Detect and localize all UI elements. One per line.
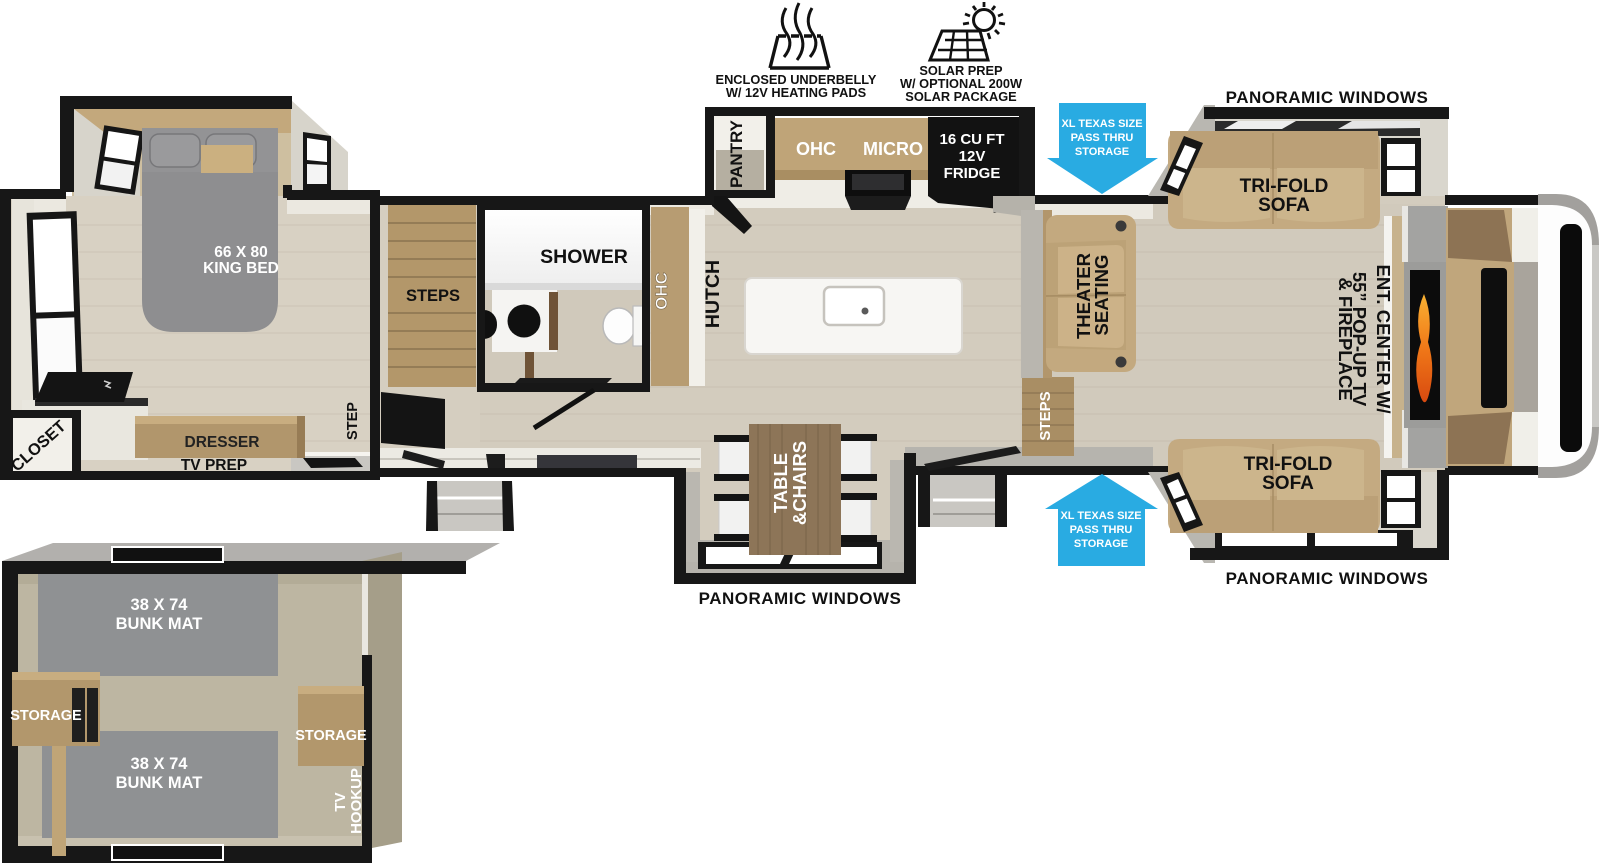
svg-text:& FIREPLACE: & FIREPLACE xyxy=(1335,277,1356,400)
svg-text:BUNK MAT: BUNK MAT xyxy=(116,615,203,633)
svg-text:&CHAIRS: &CHAIRS xyxy=(789,441,810,525)
svg-text:HUTCH: HUTCH xyxy=(702,260,724,328)
svg-text:SEATING: SEATING xyxy=(1091,255,1112,336)
svg-text:STEPS: STEPS xyxy=(406,287,460,305)
svg-text:STORAGE: STORAGE xyxy=(10,708,82,724)
svg-text:16 CU FT: 16 CU FT xyxy=(939,131,1004,148)
svg-text:66 X 80: 66 X 80 xyxy=(214,244,267,261)
svg-text:OHC: OHC xyxy=(652,272,671,310)
svg-text:12V: 12V xyxy=(959,148,986,165)
svg-text:PASS THRU: PASS THRU xyxy=(1071,132,1134,144)
svg-text:KING BED: KING BED xyxy=(203,260,279,277)
svg-text:STORAGE: STORAGE xyxy=(1075,146,1129,158)
svg-text:38 X 74: 38 X 74 xyxy=(131,596,189,614)
svg-text:TV: TV xyxy=(332,792,349,811)
svg-text:PANORAMIC WINDOWS: PANORAMIC WINDOWS xyxy=(1226,88,1429,107)
svg-text:PANTRY: PANTRY xyxy=(727,119,746,188)
svg-text:STEPS: STEPS xyxy=(1037,391,1054,440)
svg-text:SOFA: SOFA xyxy=(1258,195,1310,216)
svg-text:STORAGE: STORAGE xyxy=(1074,538,1128,550)
svg-text:PANORAMIC WINDOWS: PANORAMIC WINDOWS xyxy=(1226,569,1429,588)
svg-text:TRI-FOLD: TRI-FOLD xyxy=(1244,454,1333,475)
svg-text:PASS THRU: PASS THRU xyxy=(1070,524,1133,536)
svg-text:DRESSER: DRESSER xyxy=(185,434,260,451)
svg-text:BUNK MAT: BUNK MAT xyxy=(116,774,203,792)
svg-text:XL TEXAS SIZE: XL TEXAS SIZE xyxy=(1060,510,1141,522)
svg-text:38 X 74: 38 X 74 xyxy=(131,755,189,773)
svg-text:OHC: OHC xyxy=(796,139,836,159)
svg-text:STEP: STEP xyxy=(345,402,361,440)
svg-text:W/ 12V HEATING PADS: W/ 12V HEATING PADS xyxy=(726,85,867,100)
svg-text:SHOWER: SHOWER xyxy=(540,246,628,268)
svg-text:XL TEXAS SIZE: XL TEXAS SIZE xyxy=(1061,118,1142,130)
svg-text:ENT. CENTER W/: ENT. CENTER W/ xyxy=(1373,264,1394,413)
svg-text:TABLE: TABLE xyxy=(770,453,791,513)
svg-text:SOLAR PACKAGE: SOLAR PACKAGE xyxy=(905,89,1017,104)
svg-text:TRI-FOLD: TRI-FOLD xyxy=(1240,176,1329,197)
svg-text:SOFA: SOFA xyxy=(1262,473,1314,494)
svg-text:MICRO: MICRO xyxy=(863,139,923,159)
svg-text:PANORAMIC WINDOWS: PANORAMIC WINDOWS xyxy=(699,589,902,608)
svg-text:STORAGE: STORAGE xyxy=(295,728,367,744)
svg-text:FRIDGE: FRIDGE xyxy=(944,165,1001,182)
svg-text:HOOKUP: HOOKUP xyxy=(348,768,365,834)
